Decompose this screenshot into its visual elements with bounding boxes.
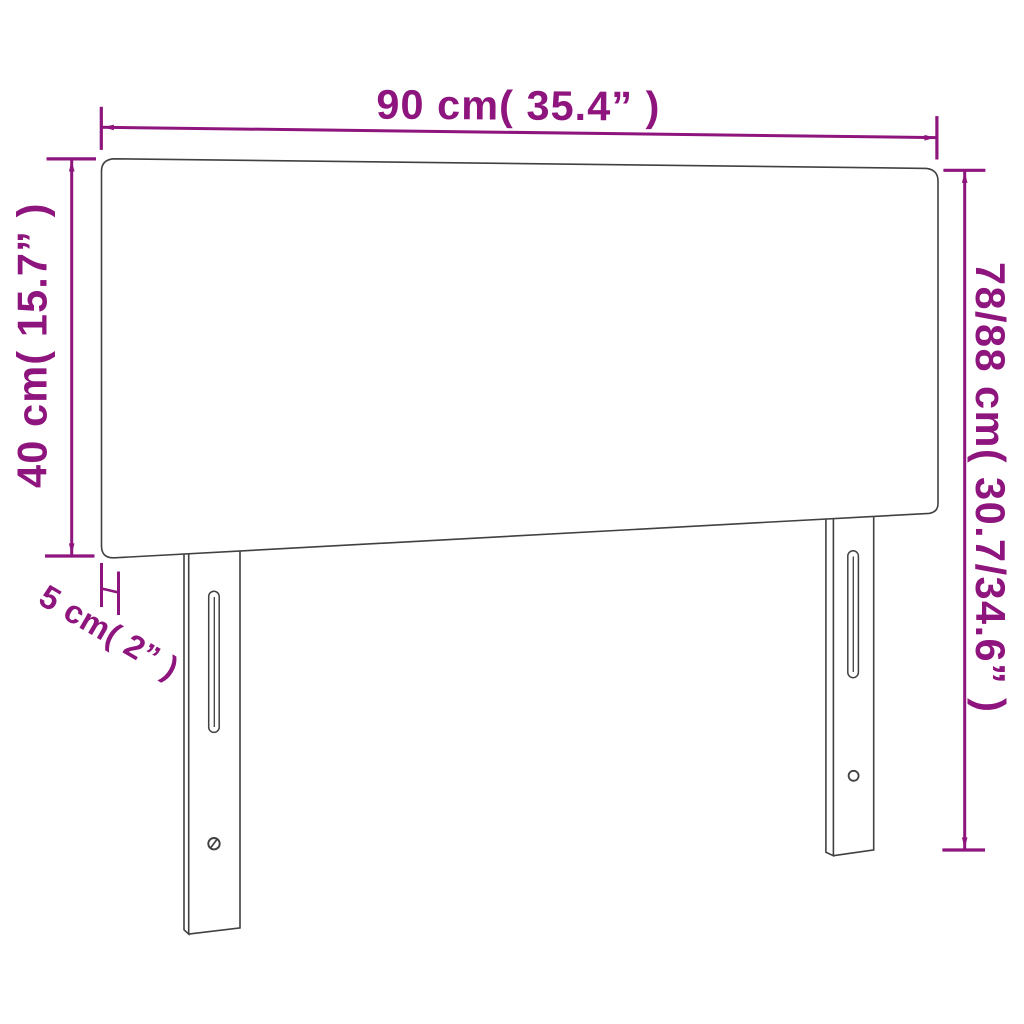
svg-text:78/88 cm( 30.7/34.6” ): 78/88 cm( 30.7/34.6” ) [967, 262, 1014, 712]
svg-text:90 cm( 35.4” ): 90 cm( 35.4” ) [376, 81, 659, 130]
svg-text:40 cm( 15.7” ): 40 cm( 15.7” ) [9, 204, 56, 489]
